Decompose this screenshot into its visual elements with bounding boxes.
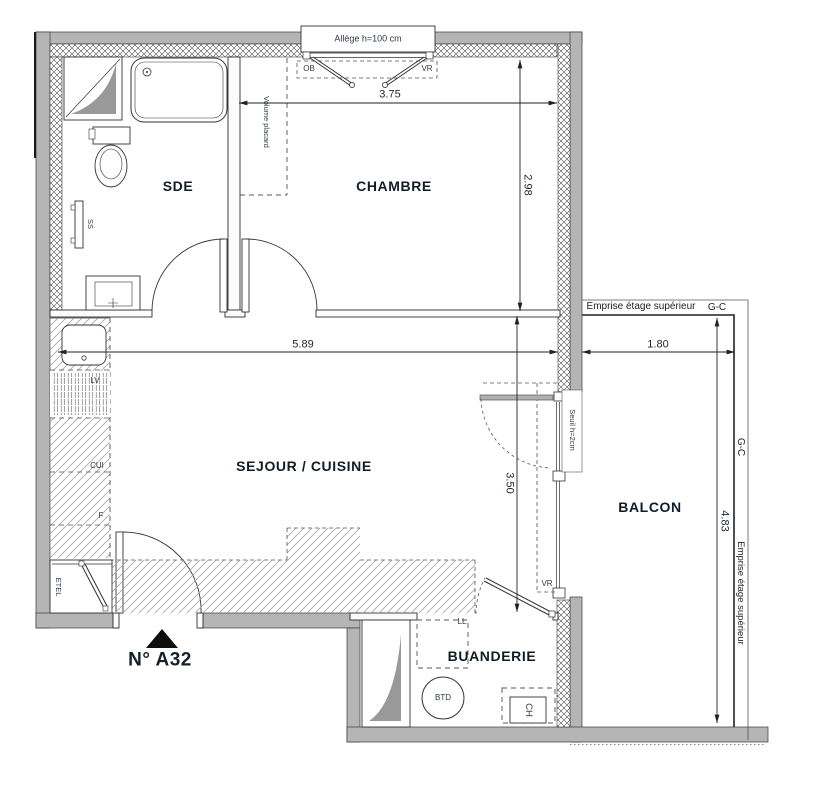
room-label-chambre: CHAMBRE	[356, 179, 432, 193]
gc-side-label: G-C	[735, 438, 745, 456]
seuil-label: Seuil h=2cm	[568, 409, 576, 450]
water-heater-label: BTD	[435, 694, 451, 702]
emprise-top-label: Emprise étage supérieur	[587, 302, 696, 312]
shower-tray	[131, 58, 227, 122]
entrance-arrow	[146, 629, 178, 648]
dim-sejour-width: 5.89	[292, 340, 313, 351]
etel-label: ETEL	[54, 578, 62, 597]
sde-fixtures	[64, 57, 227, 310]
volume-placard-label: Volume placard	[262, 96, 270, 148]
window-ob-label: OB	[303, 65, 315, 73]
gc-top-label: G-C	[708, 303, 726, 313]
bay-sliding-leaf	[480, 395, 553, 400]
towel-radiator-label: SS	[86, 219, 94, 229]
balcony-bay-window	[480, 383, 582, 598]
dim-balcon-width: 1.80	[647, 340, 668, 351]
floor-plan-drawing	[0, 0, 831, 800]
towel-radiator	[75, 201, 83, 248]
cooker-label: CUI	[90, 462, 104, 470]
room-label-sde: SDE	[163, 179, 194, 193]
bay-vr-label: VR	[541, 580, 552, 588]
dishwasher-label: LV	[90, 377, 99, 385]
kitchen-units	[50, 318, 110, 558]
dim-sejour-depth: 3.50	[504, 472, 515, 493]
boiler-label: CH	[523, 703, 533, 717]
washing-machine-label: LL	[458, 618, 467, 626]
wc-tank	[93, 127, 130, 144]
allege-label: Allège h=100 cm	[334, 35, 401, 44]
entry-zone	[50, 528, 475, 613]
unit-number-label: N° A32	[128, 651, 192, 670]
dim-balcon-depth: 4.83	[719, 510, 730, 531]
floor-plan-canvas: Allège h=100 cm OB VR 3.75 2.98 5.89 3.5…	[0, 0, 831, 800]
kitchen-sink	[62, 325, 106, 365]
room-label-sejour: SEJOUR / CUISINE	[236, 459, 372, 473]
chambre-door-leaf	[242, 239, 249, 312]
window-vr-label: VR	[421, 65, 432, 73]
room-label-balcon: BALCON	[618, 500, 681, 514]
dim-chambre-depth: 2.98	[522, 174, 533, 195]
sde-door-leaf	[220, 239, 227, 312]
fridge-label: F	[99, 512, 104, 520]
dim-chambre-width: 3.75	[379, 90, 400, 101]
emprise-side-label: Emprise étage supérieur	[735, 541, 745, 645]
room-label-buanderie: BUANDERIE	[448, 649, 537, 663]
balcony-outline	[570, 300, 765, 745]
